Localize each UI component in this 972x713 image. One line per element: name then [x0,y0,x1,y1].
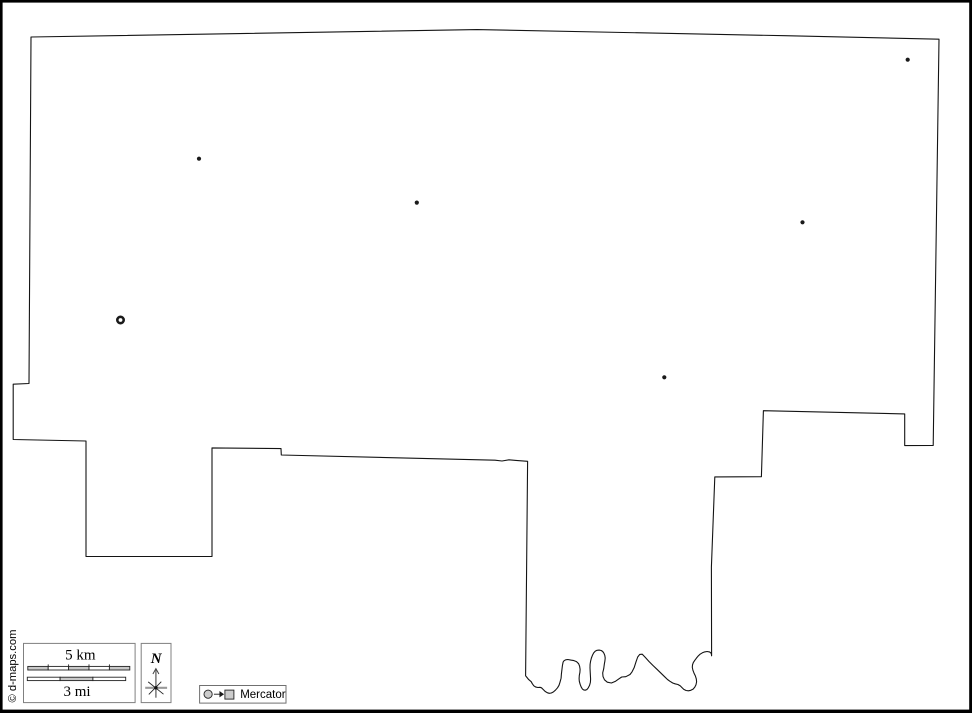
svg-text:3 mi: 3 mi [63,684,90,700]
svg-text:Mercator: Mercator [240,689,286,701]
svg-text:© d-maps.com: © d-maps.com [7,630,19,703]
svg-text:N: N [150,651,163,667]
svg-text:5 km: 5 km [65,648,96,664]
